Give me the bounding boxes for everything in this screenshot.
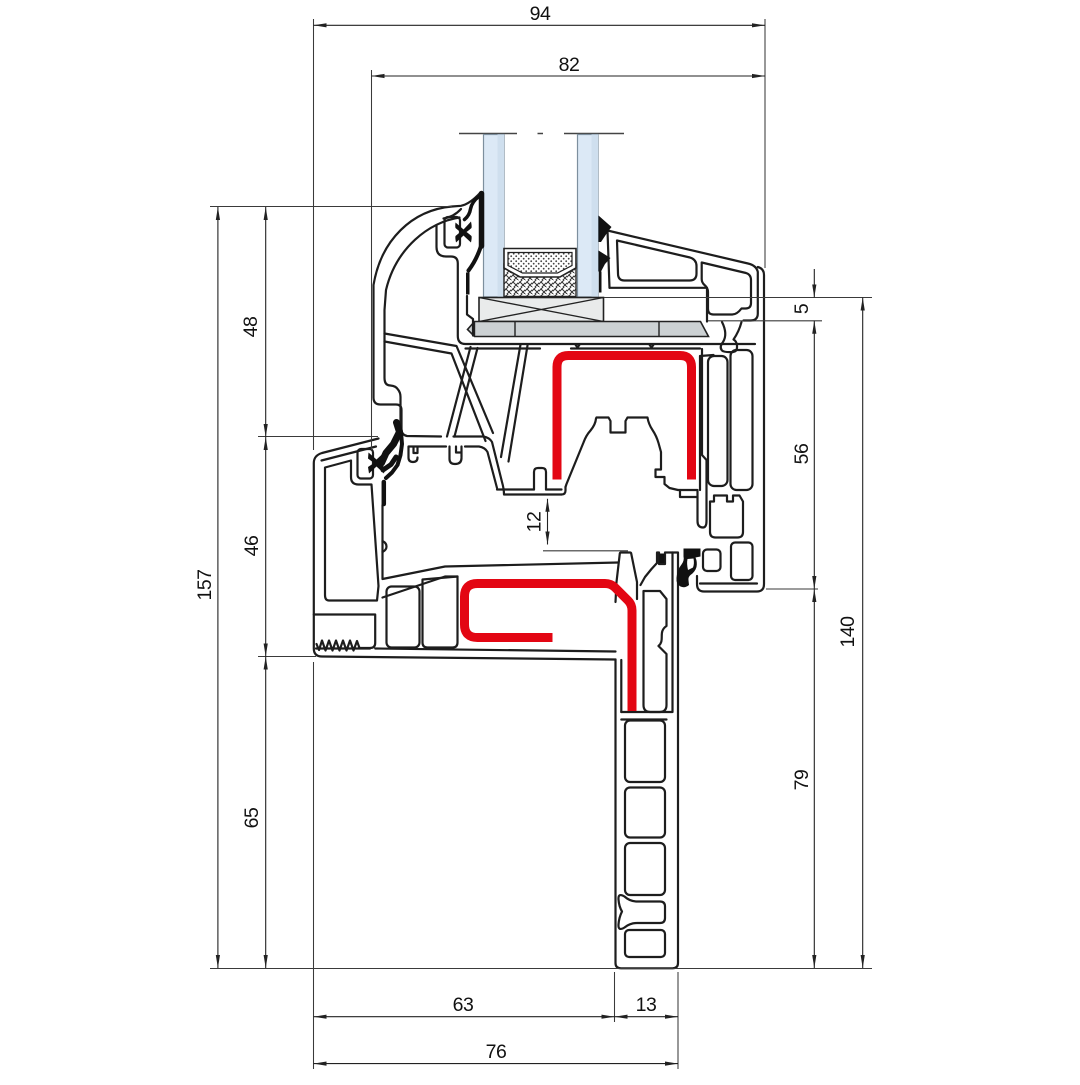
svg-text:82: 82 — [559, 54, 580, 76]
svg-text:13: 13 — [636, 994, 657, 1016]
svg-text:56: 56 — [791, 444, 813, 465]
svg-text:48: 48 — [240, 317, 262, 338]
svg-text:65: 65 — [241, 807, 263, 828]
svg-text:94: 94 — [530, 3, 551, 25]
svg-text:63: 63 — [453, 994, 474, 1016]
svg-text:12: 12 — [524, 512, 546, 533]
svg-text:79: 79 — [791, 770, 813, 791]
svg-text:46: 46 — [241, 536, 263, 557]
svg-text:76: 76 — [486, 1041, 507, 1063]
svg-text:140: 140 — [837, 616, 859, 648]
svg-text:5: 5 — [791, 303, 813, 314]
svg-text:157: 157 — [194, 569, 216, 600]
